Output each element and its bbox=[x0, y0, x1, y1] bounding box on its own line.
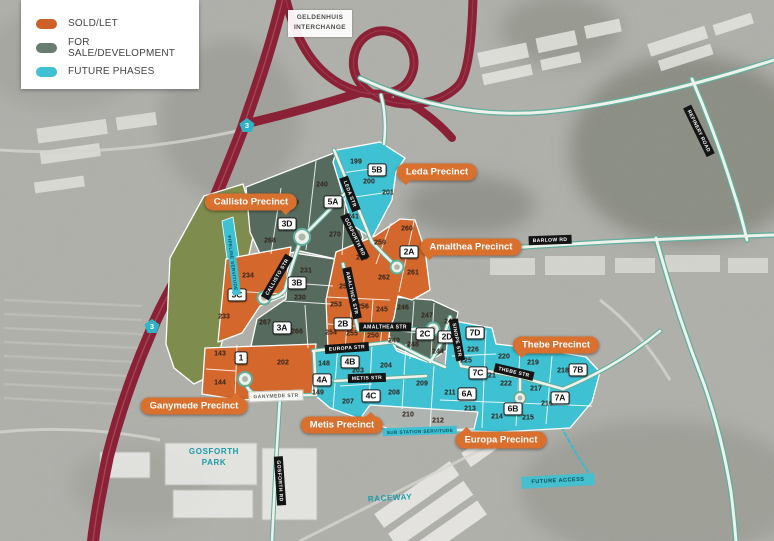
plot-number-200: 200 bbox=[363, 179, 375, 186]
plot-number-219: 219 bbox=[527, 360, 539, 367]
plot-number-149: 149 bbox=[312, 390, 324, 397]
callout-tail bbox=[461, 427, 472, 438]
plot-number-261: 261 bbox=[407, 270, 419, 277]
interchange-line1: GELDENHUIS bbox=[288, 13, 352, 23]
callout-tail bbox=[281, 204, 292, 215]
plot-number-210: 210 bbox=[402, 412, 414, 419]
precinct-badge-7A: 7A bbox=[551, 391, 570, 404]
plot-number-234: 234 bbox=[242, 273, 254, 280]
street-label: AMALTHEA STR bbox=[342, 267, 362, 319]
plot-number-148: 148 bbox=[318, 361, 330, 368]
plot-number-214: 214 bbox=[491, 414, 503, 421]
plot-number-231: 231 bbox=[300, 268, 312, 275]
legend-label-future: FUTURE PHASES bbox=[68, 66, 155, 77]
legend-row-for-sale: FOR SALE/DEVELOPMENT bbox=[36, 37, 199, 58]
callout-tail bbox=[424, 249, 435, 260]
street-label: GOSFORTH RD bbox=[274, 456, 286, 506]
street-label: GANYMEDE STR bbox=[248, 390, 303, 403]
plot-number-260: 260 bbox=[401, 226, 413, 233]
precinct-badge-2C: 2C bbox=[416, 327, 435, 340]
plot-number-202: 202 bbox=[277, 360, 289, 367]
plot-number-204: 204 bbox=[380, 363, 392, 370]
precinct-badge-3D: 3D bbox=[278, 217, 297, 230]
precinct-badge-6B: 6B bbox=[504, 402, 523, 415]
plot-number-250: 250 bbox=[367, 333, 379, 340]
precinct-badge-4B: 4B bbox=[341, 355, 360, 368]
plot-number-144: 144 bbox=[214, 380, 226, 387]
legend-row-future: FUTURE PHASES bbox=[36, 61, 199, 82]
area-label: GOSFORTH PARK bbox=[189, 446, 239, 468]
plot-number-230: 230 bbox=[294, 295, 306, 302]
route-shield-n3: 3 bbox=[145, 319, 160, 333]
legend: SOLD/LET FOR SALE/DEVELOPMENT FUTURE PHA… bbox=[21, 0, 199, 89]
callout-europa-precinct[interactable]: Europa Precinct bbox=[456, 432, 547, 449]
plot-number-201: 201 bbox=[382, 190, 394, 197]
plot-number-220: 220 bbox=[498, 354, 510, 361]
area-label: RACEWAY bbox=[368, 491, 413, 504]
street-label: BARLOW RD bbox=[528, 235, 571, 245]
precinct-badge-4C: 4C bbox=[362, 389, 381, 402]
street-label: LEDA STR bbox=[339, 176, 360, 213]
plot-number-244: 244 bbox=[432, 349, 444, 356]
interchange-label: GELDENHUIS INTERCHANGE bbox=[288, 10, 352, 37]
precinct-badge-4A: 4A bbox=[313, 373, 332, 386]
plot-number-218: 218 bbox=[557, 368, 569, 375]
precinct-badge-7C: 7C bbox=[469, 366, 488, 379]
street-label: METIS STR bbox=[348, 373, 387, 383]
plot-number-249: 249 bbox=[388, 338, 400, 345]
callout-metis-precinct[interactable]: Metis Precinct bbox=[301, 417, 383, 434]
plot-number-217: 217 bbox=[530, 386, 542, 393]
callout-callisto-precinct[interactable]: Callisto Precinct bbox=[205, 194, 297, 211]
legend-row-sold: SOLD/LET bbox=[36, 13, 199, 34]
plot-number-246: 246 bbox=[397, 305, 409, 312]
precinct-badge-7B: 7B bbox=[569, 363, 588, 376]
legend-label-sold: SOLD/LET bbox=[68, 18, 118, 29]
plot-number-222: 222 bbox=[500, 381, 512, 388]
legend-swatch-for-sale bbox=[36, 43, 57, 53]
plot-number-209: 209 bbox=[416, 381, 428, 388]
plot-number-245: 245 bbox=[376, 307, 388, 314]
plot-number-226: 226 bbox=[467, 347, 479, 354]
plot-number-240: 240 bbox=[316, 182, 328, 189]
plot-number-266: 266 bbox=[291, 329, 303, 336]
callout-amalthea-precinct[interactable]: Amalthea Precinct bbox=[421, 239, 522, 256]
plot-number-262: 262 bbox=[378, 275, 390, 282]
street-label: REFINERY ROAD bbox=[683, 105, 715, 158]
plot-number-248: 248 bbox=[407, 342, 419, 349]
plot-number-215: 215 bbox=[522, 415, 534, 422]
callout-tail bbox=[366, 412, 377, 423]
interchange-line2: INTERCHANGE bbox=[288, 23, 352, 33]
precinct-badge-2A: 2A bbox=[400, 245, 419, 258]
street-label: PIPELINE SERVITUDE bbox=[225, 231, 241, 295]
plot-number-254: 254 bbox=[325, 330, 337, 337]
legend-label-for-sale: FOR SALE/DEVELOPMENT bbox=[68, 37, 199, 59]
callout-tail bbox=[230, 393, 241, 404]
plot-number-213: 213 bbox=[464, 406, 476, 413]
plot-number-212: 212 bbox=[432, 418, 444, 425]
plot-number-253: 253 bbox=[330, 302, 342, 309]
plot-number-233: 233 bbox=[218, 314, 230, 321]
street-label: AMALTHEA STR bbox=[359, 323, 411, 332]
callout-ganymede-precinct[interactable]: Ganymede Precinct bbox=[141, 398, 248, 415]
plot-number-270: 270 bbox=[329, 232, 341, 239]
site-map: 1992002012402412692702682342332312302672… bbox=[0, 0, 774, 541]
plot-number-208: 208 bbox=[388, 390, 400, 397]
street-label: SUB STATION SERVITUDE bbox=[383, 426, 458, 437]
street-label: EUROPA STR bbox=[325, 342, 370, 354]
plot-number-268: 268 bbox=[264, 238, 276, 245]
plot-number-255: 255 bbox=[346, 331, 358, 338]
plot-number-247: 247 bbox=[421, 313, 433, 320]
legend-swatch-future bbox=[36, 67, 57, 77]
precinct-badge-5A: 5A bbox=[324, 195, 343, 208]
callout-leda-precinct[interactable]: Leda Precinct bbox=[397, 164, 477, 181]
precinct-badge-3A: 3A bbox=[273, 321, 292, 334]
plot-number-207: 207 bbox=[342, 399, 354, 406]
precinct-badge-6A: 6A bbox=[458, 387, 477, 400]
legend-swatch-sold bbox=[36, 19, 57, 29]
precinct-badge-3B: 3B bbox=[288, 276, 307, 289]
callout-tail bbox=[516, 347, 527, 358]
plot-number-143: 143 bbox=[214, 351, 226, 358]
plot-number-259: 259 bbox=[374, 240, 386, 247]
callout-tail bbox=[400, 174, 411, 185]
route-shield-n3: 3 bbox=[240, 118, 255, 132]
plot-number-267: 267 bbox=[259, 320, 271, 327]
precinct-badge-7D: 7D bbox=[466, 326, 485, 339]
area-label: FUTURE ACCESS bbox=[521, 473, 595, 489]
plot-number-199: 199 bbox=[350, 159, 362, 166]
plot-number-211: 211 bbox=[444, 390, 455, 397]
precinct-badge-2B: 2B bbox=[334, 317, 353, 330]
precinct-badge-5B: 5B bbox=[368, 163, 387, 176]
callout-thebe-precinct[interactable]: Thebe Precinct bbox=[513, 337, 599, 354]
precinct-badge-1: 1 bbox=[235, 351, 248, 364]
